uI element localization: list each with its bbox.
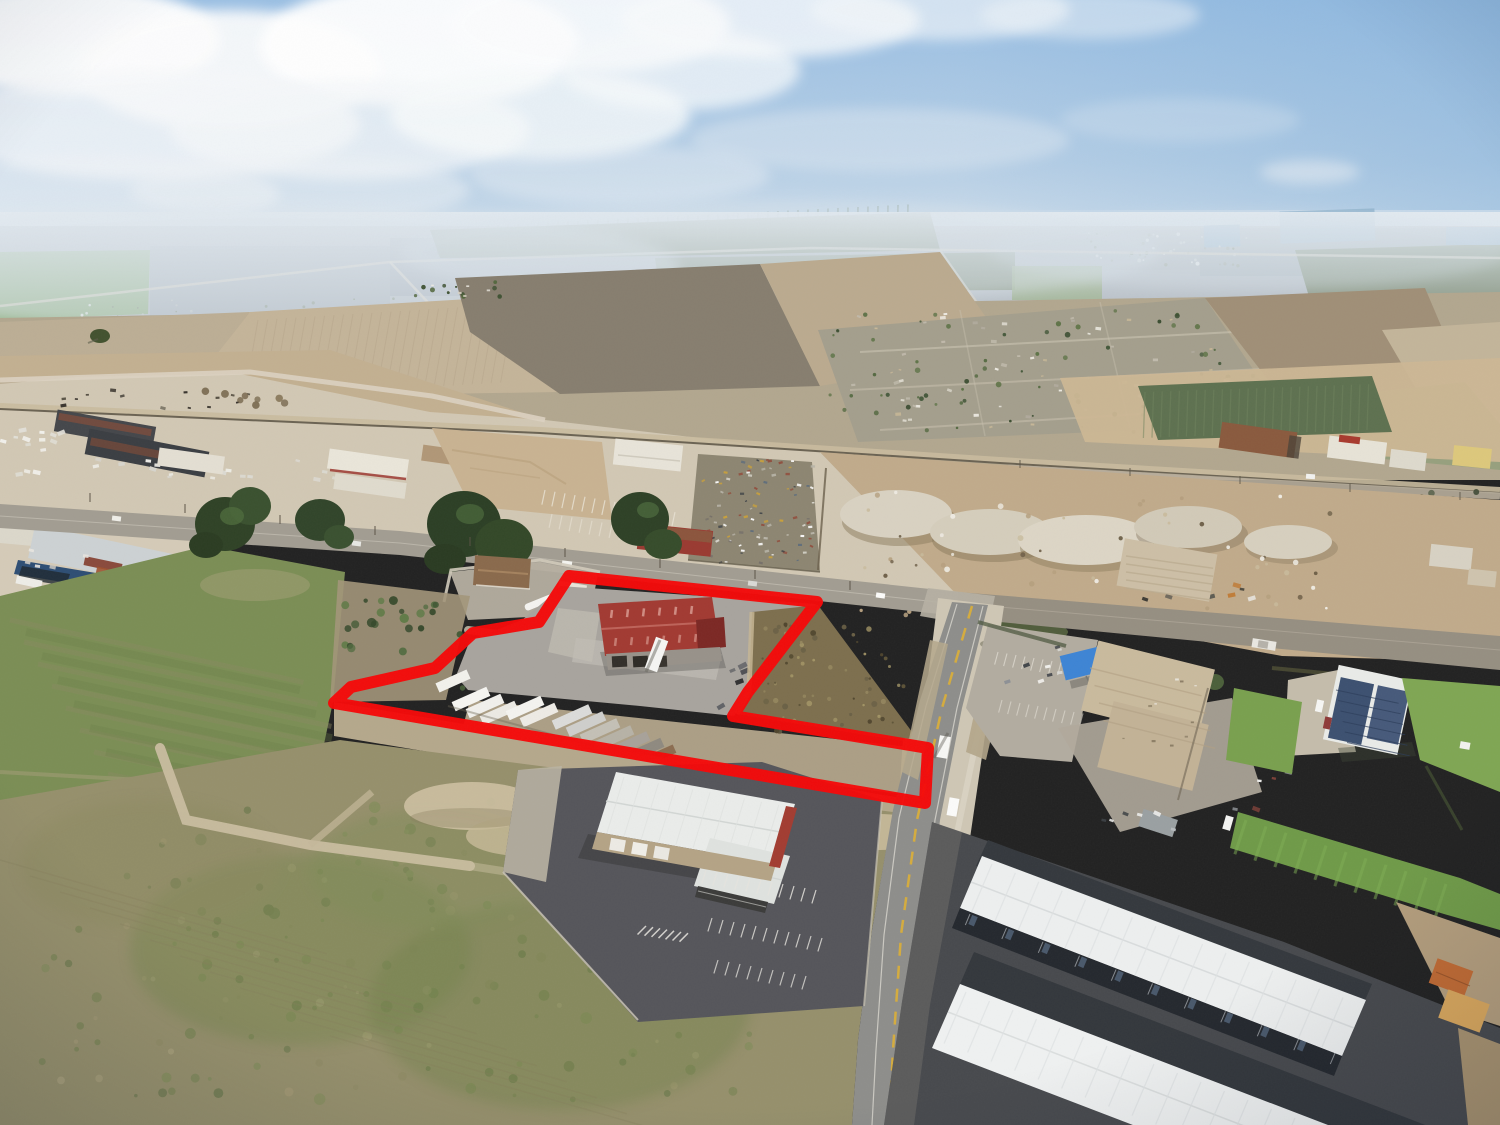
aerial-photo bbox=[0, 0, 1500, 1125]
aerial-photo-container: Aerial drone photograph of a flat agricu… bbox=[0, 0, 1500, 1125]
vignette bbox=[0, 0, 1500, 1125]
